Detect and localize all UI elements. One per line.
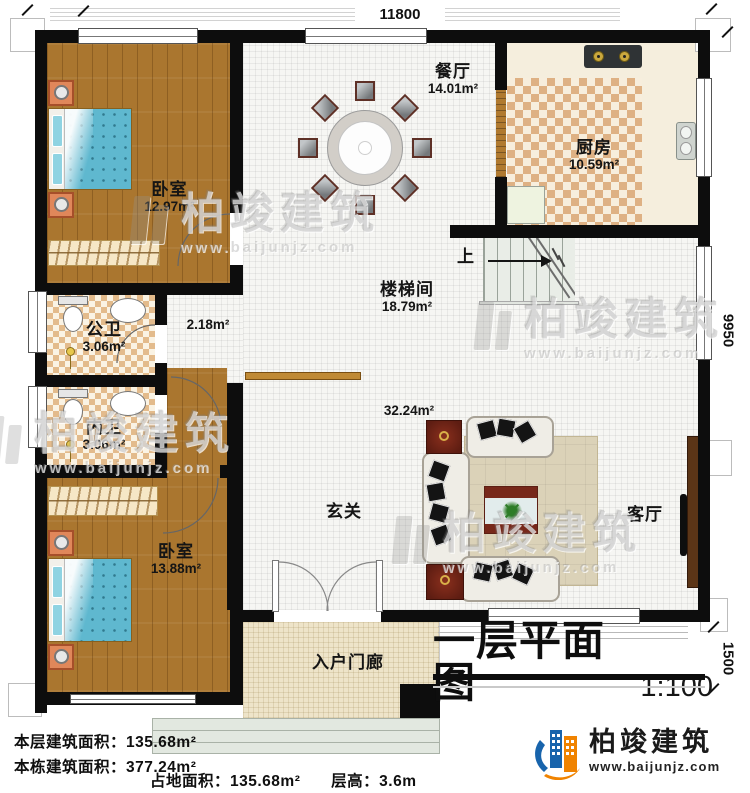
dimension-top: 11800 <box>355 6 445 23</box>
window <box>28 291 47 353</box>
company-logo-icon <box>530 722 584 780</box>
dimension-right: 9950 <box>720 305 737 357</box>
window <box>70 694 196 704</box>
window <box>78 28 198 44</box>
plan-title: 一层平面图 <box>433 620 624 704</box>
wall-segment <box>495 177 507 230</box>
room-label-kitchen: 厨房 10.59m² <box>544 138 644 172</box>
room-label-public-bath: 公卫 3.06m² <box>68 320 140 354</box>
room-label-inner-bath: 内卫 3.06m² <box>68 418 140 452</box>
window <box>305 28 427 44</box>
wall-segment <box>230 43 243 213</box>
title-underline-thin <box>433 686 705 688</box>
wall-segment <box>155 295 167 325</box>
stairs-up-label: 上 <box>452 247 480 266</box>
wall-segment <box>450 225 710 238</box>
company-name: 柏竣建筑 <box>589 728 720 758</box>
wall-segment <box>381 610 430 622</box>
wall-segment <box>35 30 47 713</box>
window <box>28 386 47 448</box>
window <box>696 246 712 360</box>
room-label-stairwell: 楼梯间 18.79m² <box>351 280 463 314</box>
room-label-living: 客厅 <box>610 505 680 524</box>
entry-door-leaf <box>272 560 279 612</box>
company-website: www.baijunjz.com <box>589 759 720 774</box>
title-block: 一层平面图 1:100 <box>433 620 713 704</box>
dimension-right-lower: 1500 <box>720 633 737 685</box>
area-label-living: 32.24m² <box>366 403 452 418</box>
wall-segment <box>35 465 163 478</box>
title-underline <box>433 674 705 680</box>
room-label-dining: 餐厅 14.01m² <box>403 62 503 96</box>
window <box>696 78 712 177</box>
entry-door-leaf <box>376 560 383 612</box>
room-label-porch: 入户门廊 <box>310 653 386 672</box>
wall-segment <box>155 363 167 395</box>
room-label-bedroom2: 卧室 13.88m² <box>118 542 234 576</box>
area-label-passage: 2.18m² <box>168 317 248 332</box>
room-label-bedroom1: 卧室 12.97m² <box>112 180 227 214</box>
room-label-foyer: 玄关 <box>312 502 376 521</box>
wall-segment <box>35 375 155 387</box>
footer-footprint-row: 占地面积：135.68m² 层高：3.6m <box>150 769 417 791</box>
wall-segment <box>243 610 274 622</box>
kitchen-door <box>496 90 506 177</box>
company-logo: 柏竣建筑 www.baijunjz.com <box>530 722 720 780</box>
floor-plan-canvas: 卧室 12.97m² 餐厅 14.01m² 厨房 10.59m² 楼梯间 18.… <box>0 0 750 793</box>
footer-floor-area: 本层建筑面积：135.68m² <box>14 730 196 752</box>
footer-footprint: 占地面积：135.68m² <box>150 773 300 790</box>
footer-floor-height: 层高：3.6m <box>331 773 416 790</box>
wall-segment <box>35 283 243 295</box>
